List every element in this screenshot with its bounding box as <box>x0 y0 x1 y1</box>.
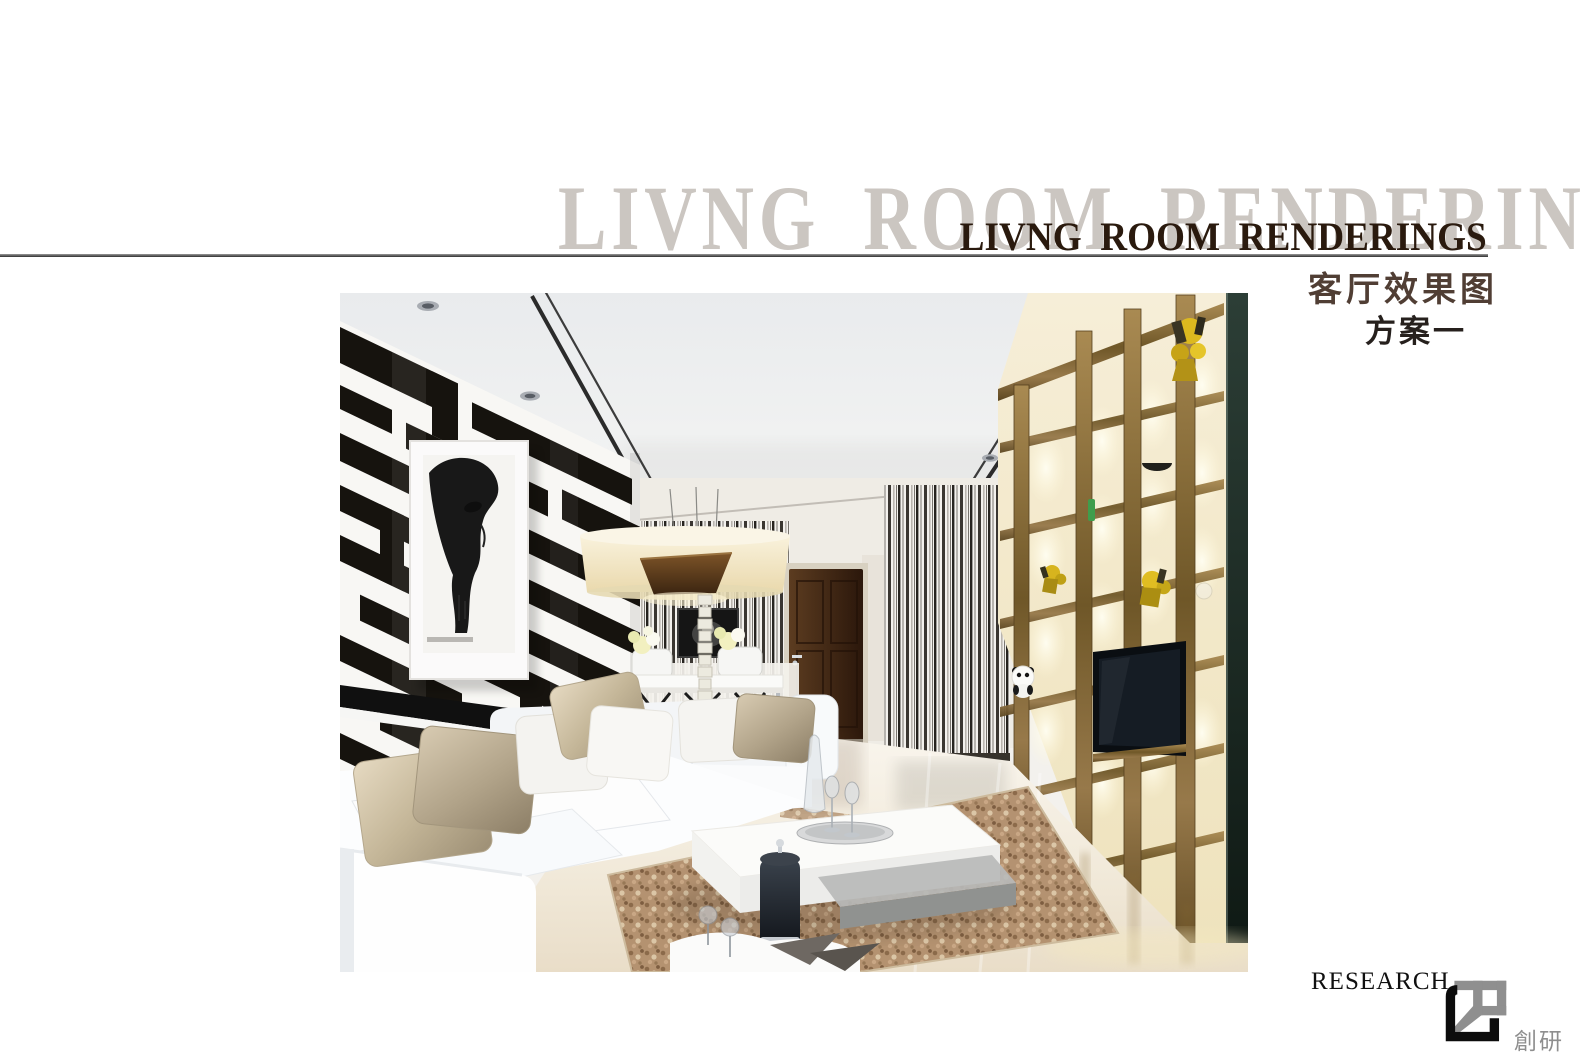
portrait-artwork <box>410 441 538 691</box>
scheme-label: 方案一 <box>1365 306 1467 351</box>
page-title: LIVNG ROOM RENDERINGS <box>960 217 1487 257</box>
presentation-slide: LIVNG ROOM RENDERINGS LIVNG ROOM RENDERI… <box>0 0 1587 1058</box>
living-room-illustration <box>340 293 1248 972</box>
research-label: RESEARCH <box>1311 968 1450 996</box>
studio-logo-icon <box>1438 975 1514 1047</box>
bottle-decor <box>1088 499 1095 521</box>
studio-name: 創研社 <box>1514 1022 1587 1058</box>
figurine-panda <box>1012 666 1034 698</box>
glass-decor <box>1196 583 1212 599</box>
subtitle-chinese: 客厅效果图 <box>1308 262 1498 311</box>
living-room-photo <box>340 293 1248 972</box>
